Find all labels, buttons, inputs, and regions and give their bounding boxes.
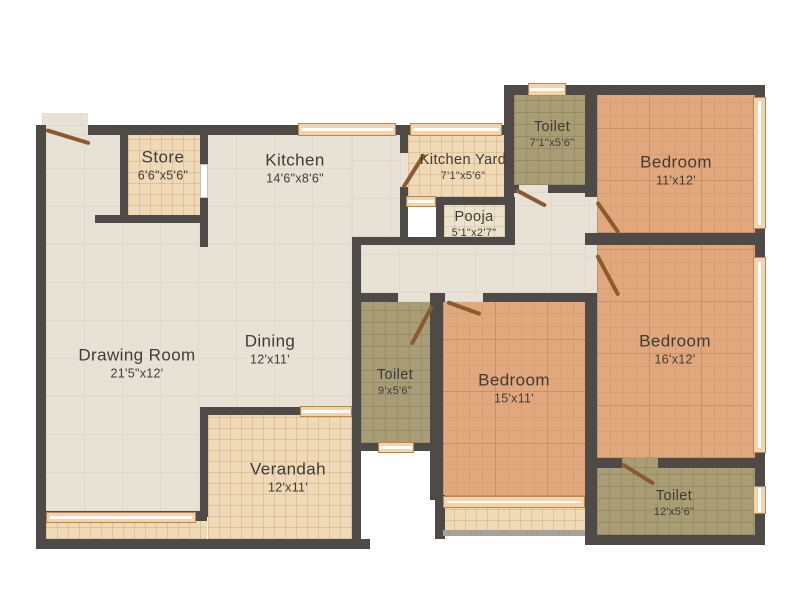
window-glass <box>758 262 761 448</box>
window <box>46 512 196 523</box>
room-dims: 6'6"x5'6" <box>138 168 188 182</box>
window <box>753 97 766 229</box>
hallway-lower <box>361 244 585 293</box>
room-label-drawing-room: Drawing Room 21'5"x12' <box>78 346 195 381</box>
wall <box>352 237 361 549</box>
room-dims: 7'1"x5'6" <box>530 137 575 150</box>
window <box>298 123 396 136</box>
wall <box>120 133 128 217</box>
room-name: Toilet <box>377 367 413 384</box>
room-dims: 16'x12' <box>639 352 711 366</box>
room-label-bedroom-15: Bedroom 15'x11' <box>478 371 550 406</box>
room-dims: 9'x5'6" <box>377 385 413 398</box>
room-label-store: Store 6'6"x5'6" <box>138 148 188 183</box>
window-glass <box>530 88 565 91</box>
room-name: Drawing Room <box>78 346 195 366</box>
wall <box>36 125 46 135</box>
room-dims: 5'1"x2'7" <box>452 227 497 240</box>
wall <box>585 535 765 545</box>
room-name: Toilet <box>530 119 575 136</box>
wall <box>200 407 208 517</box>
room-name: Dining <box>245 332 296 352</box>
room-label-pooja: Pooja 5'1"x2'7" <box>452 209 497 239</box>
wall <box>430 293 445 302</box>
room-name: Kitchen <box>265 151 325 171</box>
room-dims: 15'x11' <box>478 391 550 405</box>
room-dims: 7'1"x5'6" <box>420 170 506 183</box>
wall <box>658 458 765 468</box>
room-label-toilet-bottom: Toilet 12'x5'6" <box>654 488 694 518</box>
wall <box>585 233 755 245</box>
window-glass <box>380 446 413 448</box>
wall <box>36 135 46 549</box>
window-glass <box>301 128 393 131</box>
room-name: Bedroom <box>640 153 712 173</box>
room-label-kitchen-yard: Kitchen Yard 7'1"x5'6" <box>420 152 506 182</box>
window <box>406 196 436 207</box>
window-glass <box>302 410 350 412</box>
window <box>753 257 766 453</box>
wall <box>483 293 597 302</box>
room-label-toilet-top: Toilet 7'1"x5'6" <box>530 119 575 149</box>
sitout-floor <box>46 521 207 539</box>
room-name: Verandah <box>250 460 326 480</box>
wall <box>585 458 622 468</box>
wall <box>505 197 515 245</box>
room-name: Toilet <box>654 488 694 505</box>
balcony-floor <box>443 508 585 532</box>
room-label-verandah: Verandah 12'x11' <box>250 460 326 495</box>
room-dims: 12'x5'6" <box>654 506 694 519</box>
window <box>410 123 502 136</box>
window <box>443 496 585 508</box>
duct-void <box>408 205 436 237</box>
room-name: Pooja <box>452 209 497 226</box>
window-glass <box>50 516 192 518</box>
balcony-rail <box>443 530 585 536</box>
wall <box>95 215 208 223</box>
window-glass <box>413 128 499 131</box>
room-dims: 11'x12' <box>640 173 712 187</box>
room-name: Bedroom <box>639 332 711 352</box>
store-door-slab <box>200 164 208 198</box>
room-name: Bedroom <box>478 371 550 391</box>
kitchen-area <box>352 135 400 237</box>
window <box>528 83 566 96</box>
window <box>300 406 352 417</box>
room-dims: 12'x11' <box>250 480 326 494</box>
room-label-bedroom-11: Bedroom 11'x12' <box>640 153 712 188</box>
wall <box>436 203 444 237</box>
wall <box>36 539 370 549</box>
room-name: Store <box>138 148 188 168</box>
window <box>378 442 414 453</box>
room-name: Kitchen Yard <box>420 152 506 169</box>
wall <box>585 296 597 460</box>
entrance-recess <box>42 113 88 126</box>
window-glass <box>758 101 761 226</box>
wall <box>585 95 597 197</box>
window-glass <box>408 200 435 202</box>
window-glass <box>758 488 761 513</box>
window <box>753 486 766 514</box>
wall <box>361 293 398 302</box>
room-label-bedroom-16: Bedroom 16'x12' <box>639 332 711 367</box>
room-label-dining: Dining 12'x11' <box>245 332 296 367</box>
wall <box>430 302 443 500</box>
wall <box>585 458 597 545</box>
room-label-kitchen: Kitchen 14'6"x8'6" <box>265 151 325 186</box>
doorway-patch <box>585 245 597 296</box>
wall <box>200 133 208 165</box>
wall <box>400 135 408 153</box>
room-label-toilet-mid: Toilet 9'x5'6" <box>377 367 413 397</box>
room-dims: 21'5"x12' <box>78 366 195 380</box>
window-glass <box>447 501 581 503</box>
floor-plan: Store 6'6"x5'6" Kitchen 14'6"x8'6" Kitch… <box>0 0 800 600</box>
room-dims: 12'x11' <box>245 352 296 366</box>
room-dims: 14'6"x8'6" <box>265 171 325 185</box>
